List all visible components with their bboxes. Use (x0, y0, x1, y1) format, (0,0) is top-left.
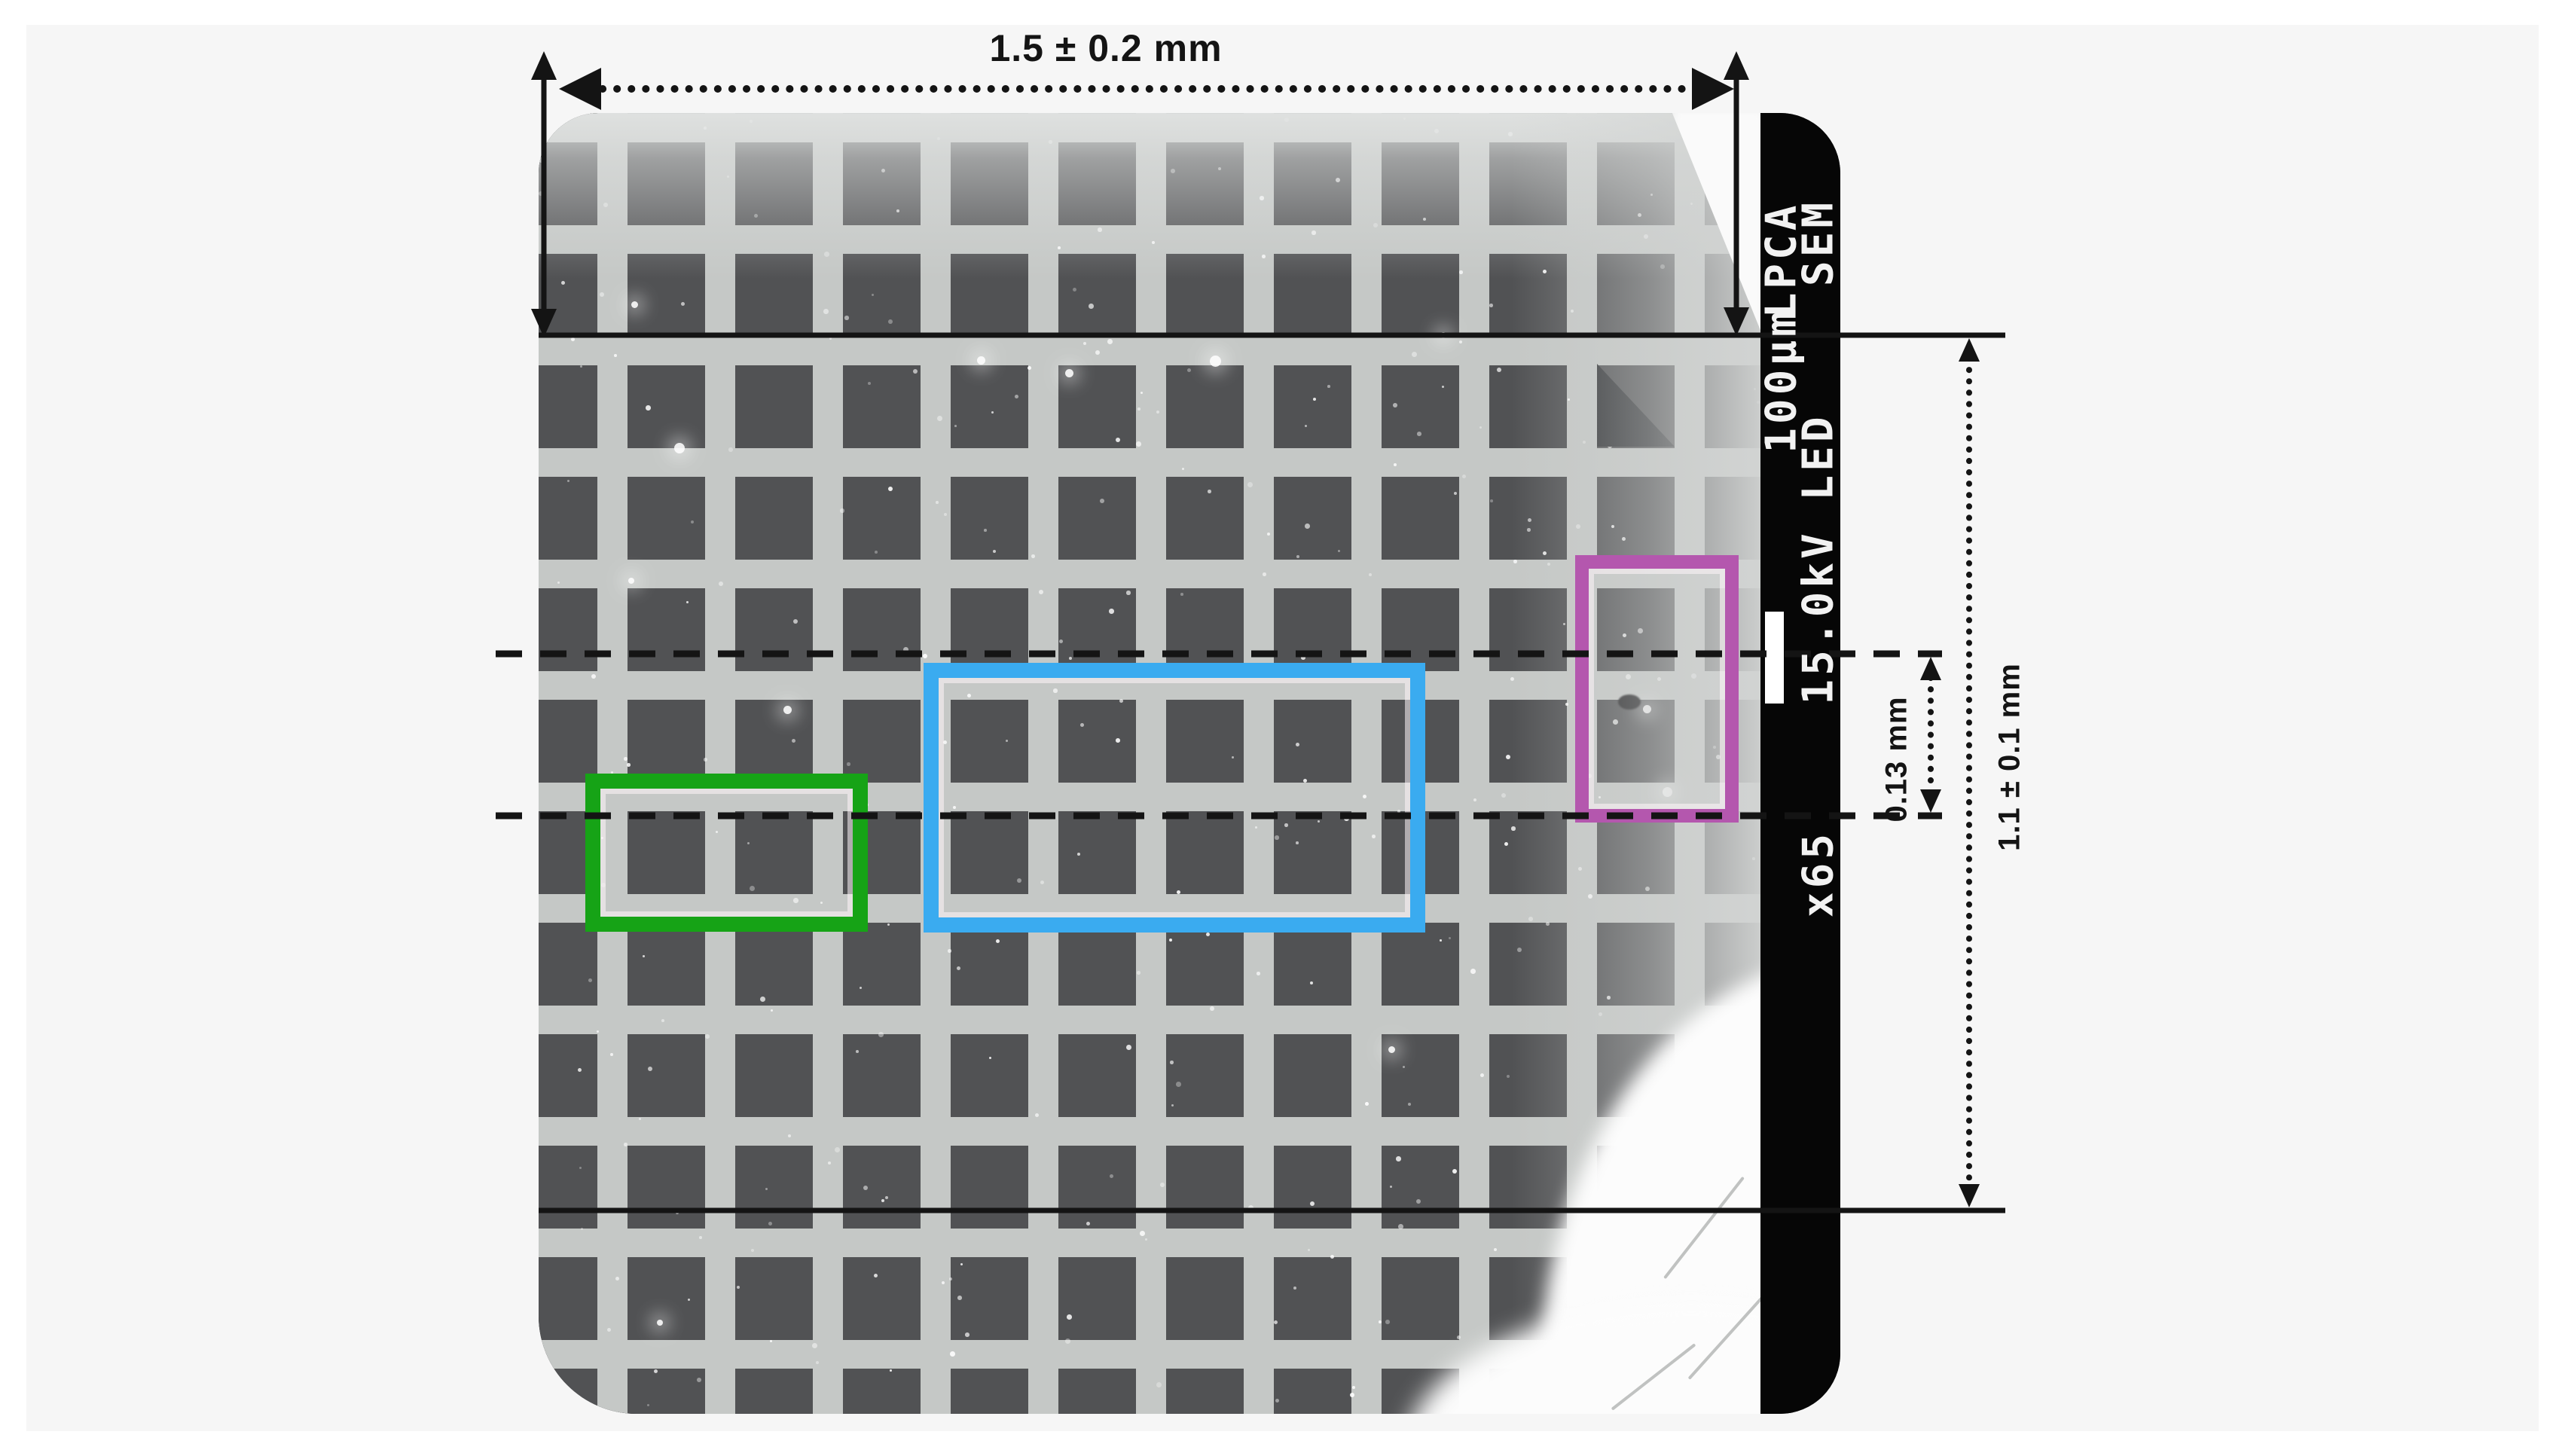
info-bar-beam-label: 15.0kV LED (1794, 413, 1843, 704)
height-dimension-label: 1.1 ± 0.1 mm (1993, 663, 2027, 851)
figure-canvas: 1.5 ± 0.2 mm 1.1 ± 0.1 mm 0.13 mm LPCA S… (0, 0, 2565, 1456)
info-bar-mode-label: SEM (1794, 199, 1843, 286)
left-extension-up-arrowhead-icon (531, 51, 557, 80)
info-bar-magnification-label: x65 (1794, 830, 1843, 917)
right-extension-up-arrowhead-icon (1724, 51, 1749, 80)
dimension-annotations (0, 0, 2565, 1456)
width-dim-left-arrowhead-icon (559, 68, 601, 110)
right-extension-down-arrowhead-icon (1724, 307, 1749, 336)
height-dim-down-arrowhead-icon (1959, 1184, 1980, 1207)
pitch-dim-up-arrowhead-icon (1920, 657, 1941, 680)
pitch-dimension-label: 0.13 mm (1880, 696, 1914, 822)
pitch-dim-down-arrowhead-icon (1920, 789, 1941, 813)
height-dim-up-arrowhead-icon (1959, 338, 1980, 362)
width-dimension-label: 1.5 ± 0.2 mm (989, 26, 1222, 70)
